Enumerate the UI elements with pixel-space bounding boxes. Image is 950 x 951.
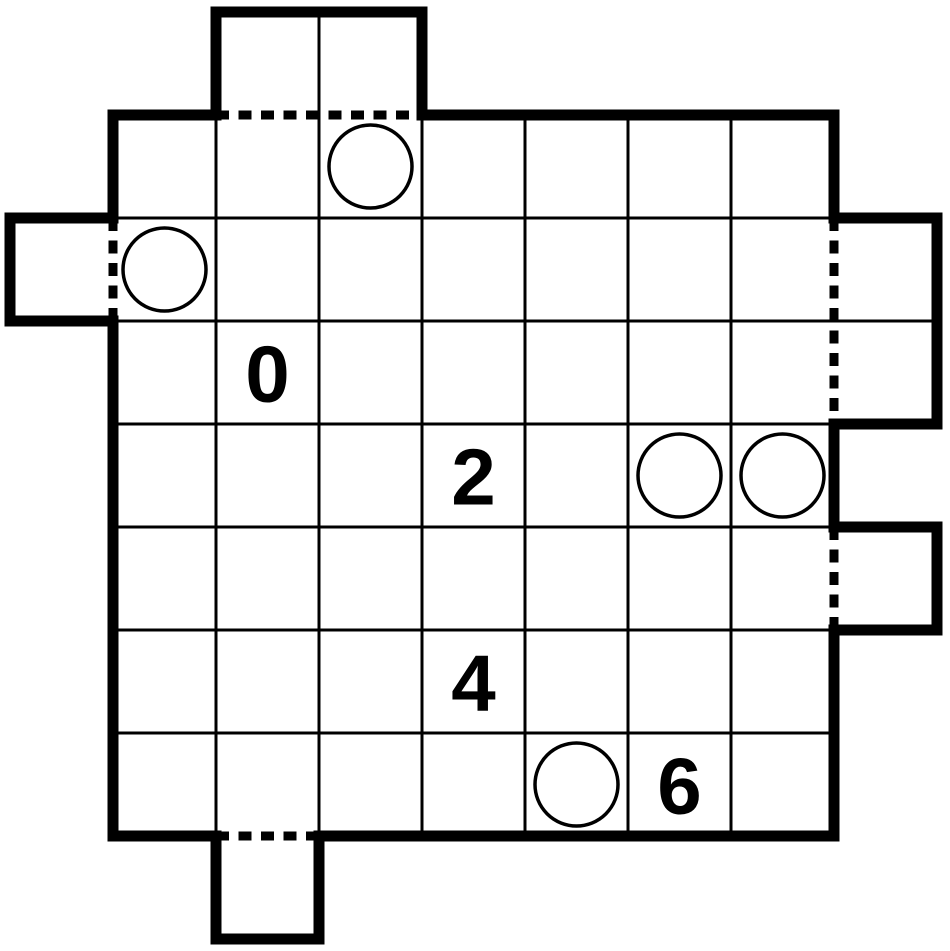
clue-number-r5c3: 4 [451, 639, 496, 728]
cell-r0c0[interactable] [113, 115, 216, 218]
circle-mark-r1c0 [123, 228, 206, 311]
cell-r2c6[interactable] [731, 321, 834, 424]
circle-mark-r3c5 [638, 434, 721, 517]
bump-cell-bottom-1[interactable] [216, 836, 319, 939]
cell-r6c6[interactable] [731, 733, 834, 836]
cell-r2c4[interactable] [525, 321, 628, 424]
circle-mark-r0c2 [329, 125, 412, 208]
cell-r4c0[interactable] [113, 527, 216, 630]
cell-r4c3[interactable] [422, 527, 525, 630]
cell-r2c0[interactable] [113, 321, 216, 424]
bump-cell-left-1[interactable] [10, 218, 113, 321]
cell-r6c3[interactable] [422, 733, 525, 836]
puzzle-board[interactable]: 0246 [0, 0, 950, 951]
cell-r1c6[interactable] [731, 218, 834, 321]
cell-r1c3[interactable] [422, 218, 525, 321]
bump-cell-right-4[interactable] [834, 527, 937, 630]
cell-r4c5[interactable] [628, 527, 731, 630]
cell-r0c3[interactable] [422, 115, 525, 218]
circle-mark-r6c4 [535, 743, 618, 826]
clue-number-r6c5: 6 [657, 742, 702, 831]
cell-r5c5[interactable] [628, 630, 731, 733]
cell-r2c3[interactable] [422, 321, 525, 424]
clue-number-r2c1: 0 [245, 330, 290, 419]
puzzle-page: 0246 [0, 0, 950, 951]
circle-mark-r3c6 [741, 434, 824, 517]
cell-r2c5[interactable] [628, 321, 731, 424]
clue-number-r3c3: 2 [451, 433, 496, 522]
cell-r0c5[interactable] [628, 115, 731, 218]
cell-r5c6[interactable] [731, 630, 834, 733]
cell-r4c6[interactable] [731, 527, 834, 630]
cell-r0c4[interactable] [525, 115, 628, 218]
cell-r4c2[interactable] [319, 527, 422, 630]
cell-r4c4[interactable] [525, 527, 628, 630]
cell-r0c1[interactable] [216, 115, 319, 218]
cell-r3c0[interactable] [113, 424, 216, 527]
cell-r5c4[interactable] [525, 630, 628, 733]
cell-r4c1[interactable] [216, 527, 319, 630]
cell-r0c6[interactable] [731, 115, 834, 218]
cell-r3c2[interactable] [319, 424, 422, 527]
cell-r1c4[interactable] [525, 218, 628, 321]
cell-r3c1[interactable] [216, 424, 319, 527]
cell-r1c1[interactable] [216, 218, 319, 321]
cell-r1c2[interactable] [319, 218, 422, 321]
cell-r5c2[interactable] [319, 630, 422, 733]
cell-r6c0[interactable] [113, 733, 216, 836]
cell-r3c4[interactable] [525, 424, 628, 527]
cell-r2c2[interactable] [319, 321, 422, 424]
cell-r6c1[interactable] [216, 733, 319, 836]
cell-r6c2[interactable] [319, 733, 422, 836]
cell-r1c5[interactable] [628, 218, 731, 321]
cell-r5c1[interactable] [216, 630, 319, 733]
cell-r5c0[interactable] [113, 630, 216, 733]
